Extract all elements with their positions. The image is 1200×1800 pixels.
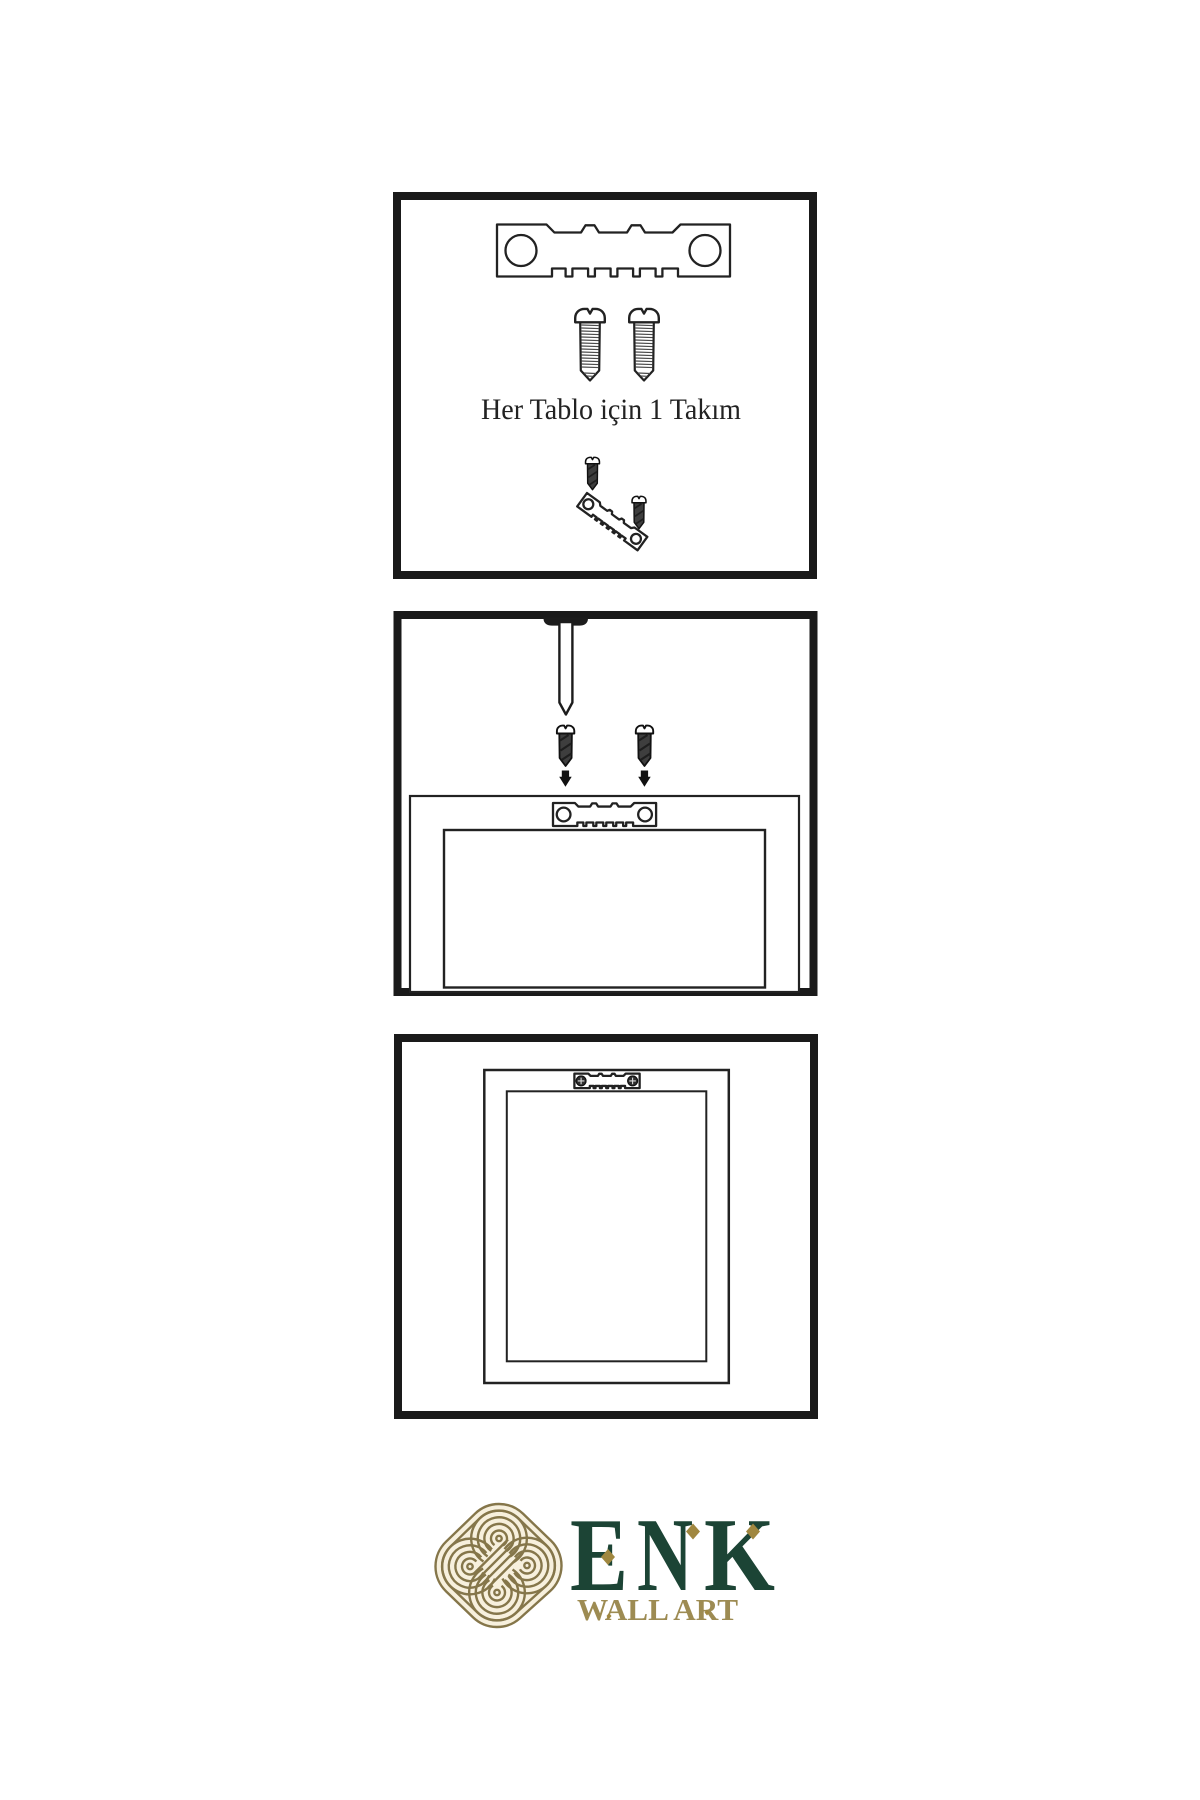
- svg-text:WALL ART: WALL ART: [577, 1592, 738, 1627]
- svg-text:Her Tablo için 1 Takım: Her Tablo için 1 Takım: [481, 393, 741, 426]
